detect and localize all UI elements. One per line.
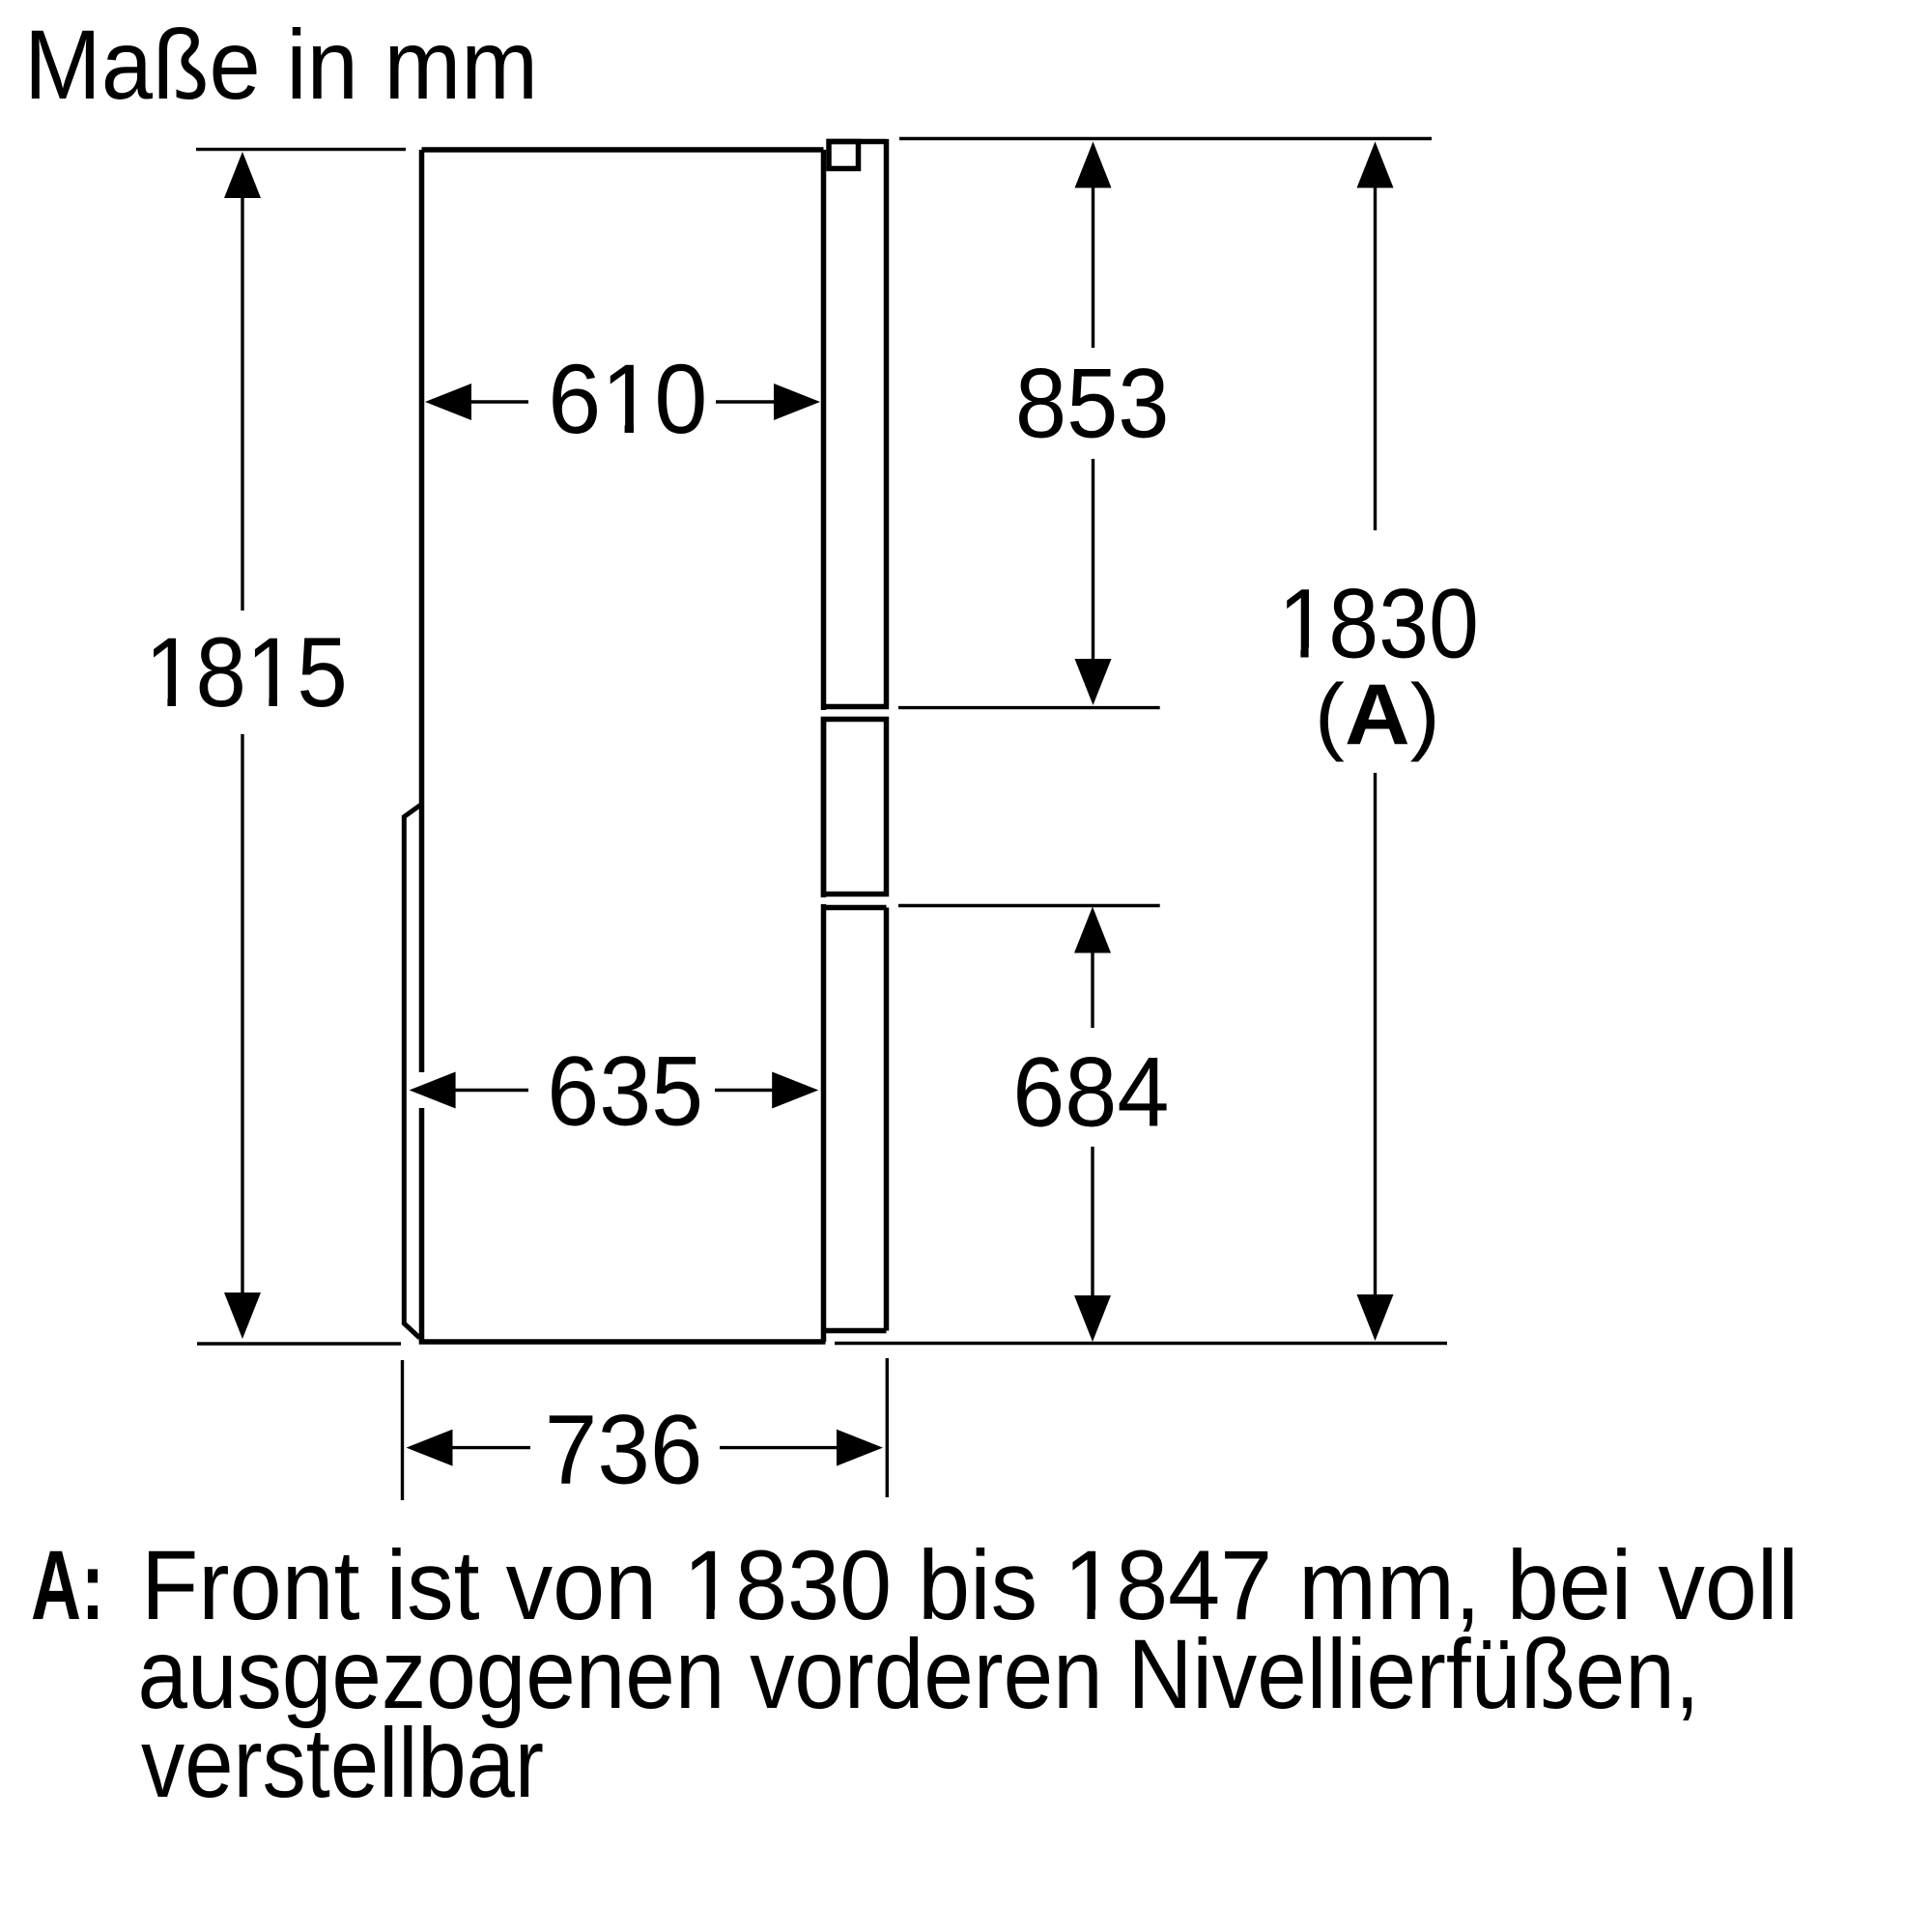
svg-text:684: 684 xyxy=(1012,1037,1169,1148)
svg-text:635: 635 xyxy=(547,1036,703,1146)
svg-text:Maße in mm: Maße in mm xyxy=(24,10,538,120)
svg-text:1815: 1815 xyxy=(145,617,348,727)
svg-text:736: 736 xyxy=(545,1395,703,1505)
svg-text:(A): (A) xyxy=(1315,666,1440,762)
svg-text:853: 853 xyxy=(1015,349,1170,459)
svg-text:A:: A: xyxy=(31,1530,104,1640)
svg-text:verstellbar: verstellbar xyxy=(141,1708,544,1818)
svg-text:1830: 1830 xyxy=(1278,568,1479,678)
svg-text:610: 610 xyxy=(548,344,707,454)
